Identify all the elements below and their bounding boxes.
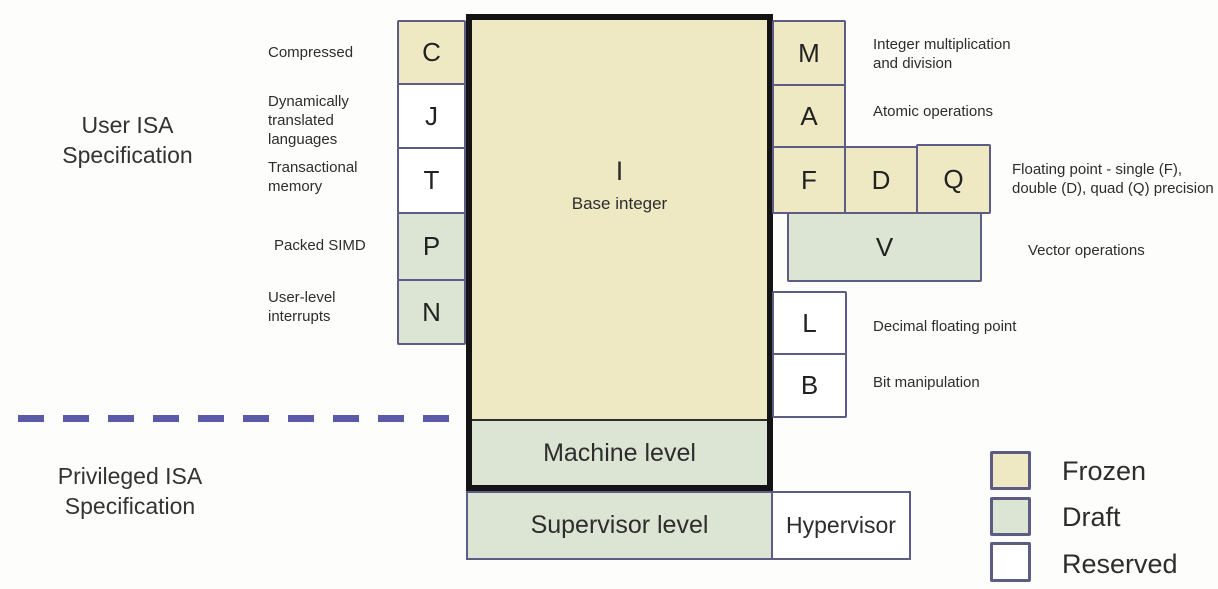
ext-box-l: L [772,291,847,355]
ext-label-a: Atomic operations [873,103,1093,122]
ext-letter: A [800,101,817,132]
ext-box-m: M [772,20,846,86]
legend-swatch-draft [990,497,1031,536]
legend-swatch-frozen [990,451,1031,490]
ext-letter: N [422,297,441,328]
ext-box-b: B [772,353,847,418]
base-integer-frame: I Base integer Machine level [466,14,773,491]
riscv-isa-diagram: User ISA Specification Privileged ISA Sp… [0,0,1218,589]
ext-box-n: N [397,279,466,345]
ext-letter: Q [943,164,963,195]
ext-letter: T [424,165,440,196]
isa-divider-line [18,415,452,422]
ext-letter: B [801,370,818,401]
supervisor-level-box: Supervisor level [466,491,773,560]
legend-swatch-reserved [990,542,1031,582]
legend-label-draft: Draft [1062,498,1121,537]
ext-label-t: Transactional memory [268,159,378,197]
core-sublabel: Base integer [472,194,767,214]
privileged-isa-title: Privileged ISA Specification [30,461,230,522]
ext-box-q: Q [916,144,991,214]
hypervisor-box: Hypervisor [771,491,911,560]
legend-label-frozen: Frozen [1062,452,1146,491]
base-integer-text: I Base integer [472,158,767,214]
ext-label-n: User-level interrupts [268,289,368,327]
ext-box-d: D [844,146,918,214]
base-integer-box: I Base integer [472,20,767,419]
ext-label-fdq: Floating point - single (F), double (D),… [1012,161,1218,199]
ext-box-p: P [397,212,466,281]
ext-label-m: Integer multiplication and division [873,36,1038,74]
user-isa-title: User ISA Specification [35,110,220,171]
hypervisor-label: Hypervisor [786,512,896,539]
ext-letter: F [801,165,817,196]
ext-label-v: Vector operations [1028,242,1218,261]
ext-label-l: Decimal floating point [873,318,1093,337]
ext-letter: J [425,101,438,132]
legend-label-reserved: Reserved [1062,544,1178,584]
ext-letter: P [423,231,440,262]
ext-label-b: Bit manipulation [873,374,1073,393]
ext-letter: D [872,165,891,196]
ext-letter: V [876,232,893,263]
supervisor-level-label: Supervisor level [531,511,709,540]
ext-box-c: C [397,20,466,85]
ext-box-t: T [397,147,466,214]
ext-label-p: Packed SIMD [274,237,389,256]
machine-level-box: Machine level [472,419,767,485]
ext-box-j: J [397,83,466,149]
ext-box-a: A [772,84,846,148]
ext-label-j: Dynamically translated languages [268,93,368,149]
ext-letter: L [802,308,816,339]
ext-box-v: V [787,212,982,282]
ext-letter: M [798,38,820,69]
ext-box-f: F [772,146,846,214]
machine-level-label: Machine level [543,439,696,468]
ext-letter: C [422,37,441,68]
ext-label-c: Compressed [268,44,383,63]
core-letter: I [472,158,767,185]
